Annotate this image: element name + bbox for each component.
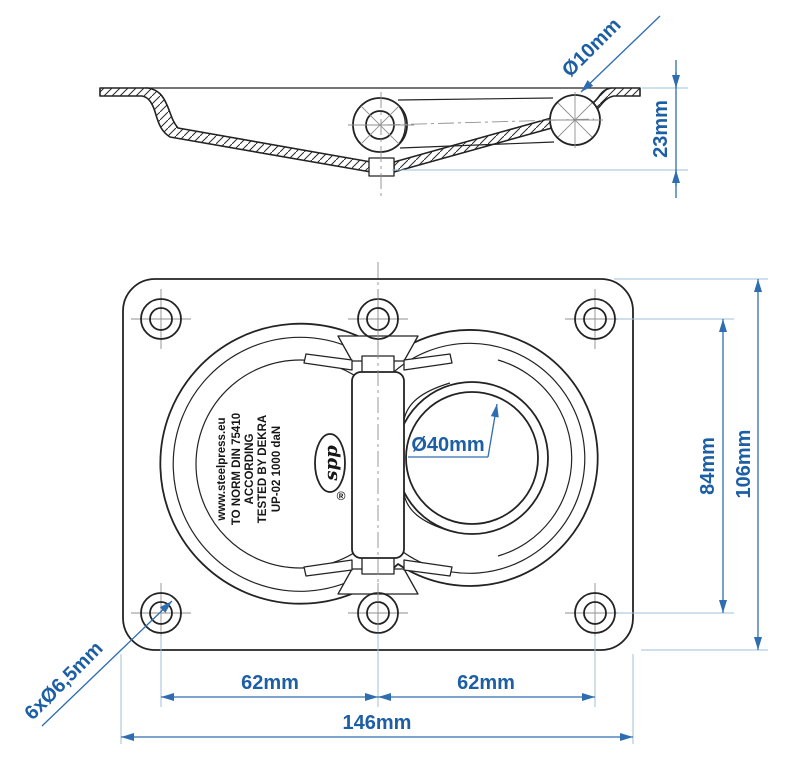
pin-seat-block: [369, 158, 394, 176]
dim-label-overall-height: 106mm: [733, 430, 755, 499]
technical-drawing: Ø10mm 23mm: [0, 0, 789, 767]
drawing-page: Ø10mm 23mm: [0, 0, 789, 767]
spp-logo: spp ®: [315, 434, 346, 503]
ring-opening-circle: [406, 392, 538, 524]
hinge-wing-top-right: [404, 354, 452, 370]
spp-logo-text: spp: [321, 445, 342, 482]
left-section-wall: [100, 88, 371, 172]
ring-marking-line: UP-02 1000 daN: [271, 426, 283, 512]
dim-mounting-holes: 6xØ6,5mm: [20, 601, 172, 726]
dim-label-mounting-holes: 6xØ6,5mm: [20, 637, 107, 724]
dim-label-hole-pitch-vertical: 84mm: [697, 437, 719, 495]
mounting-hole: [565, 583, 625, 643]
dim-label-overall-width: 146mm: [343, 712, 412, 734]
cylinder-top-edge: [398, 98, 553, 100]
dim-label-hole-pitch-right: 62mm: [457, 672, 515, 694]
ring-marking-line: TO NORM DIN 75410: [231, 413, 243, 525]
dim-label-ring-opening: Ø40mm: [411, 434, 484, 456]
mounting-hole: [131, 289, 191, 349]
dim-label-pin-diameter: Ø10mm: [558, 14, 625, 81]
dim-overall-height: 106mm: [614, 279, 768, 650]
ring-marking: www.steelpress.eu TO NORM DIN 75410 ACCO…: [216, 413, 283, 525]
front-view: www.steelpress.eu TO NORM DIN 75410 ACCO…: [20, 262, 768, 744]
dim-label-hole-pitch-left: 62mm: [241, 672, 299, 694]
hinge-wing-bottom-right: [404, 560, 452, 576]
dim-pin-diameter: Ø10mm: [558, 14, 660, 92]
mounting-hole: [131, 583, 191, 643]
ring-marking-line: TESTED BY DEKRA: [257, 415, 269, 523]
mounting-hole: [565, 289, 625, 349]
ring-marking-line: www.steelpress.eu: [216, 417, 228, 521]
hinge-wing-top-left: [304, 354, 352, 370]
ring-marking-line: ACCORDING: [244, 433, 256, 504]
right-section-wall: [394, 88, 640, 172]
dim-hole-pitch-horizontal: 62mm 62mm: [161, 634, 595, 707]
dim-hole-pitch-vertical: 84mm: [618, 319, 734, 613]
hinge-wing-bottom-left: [304, 560, 352, 576]
dim-label-recess-depth: 23mm: [650, 100, 672, 158]
registered-trademark-symbol: ®: [337, 489, 346, 503]
leader-line: [42, 601, 172, 726]
side-view: Ø10mm 23mm: [100, 14, 688, 198]
dim-overall-width: 146mm: [121, 654, 633, 744]
